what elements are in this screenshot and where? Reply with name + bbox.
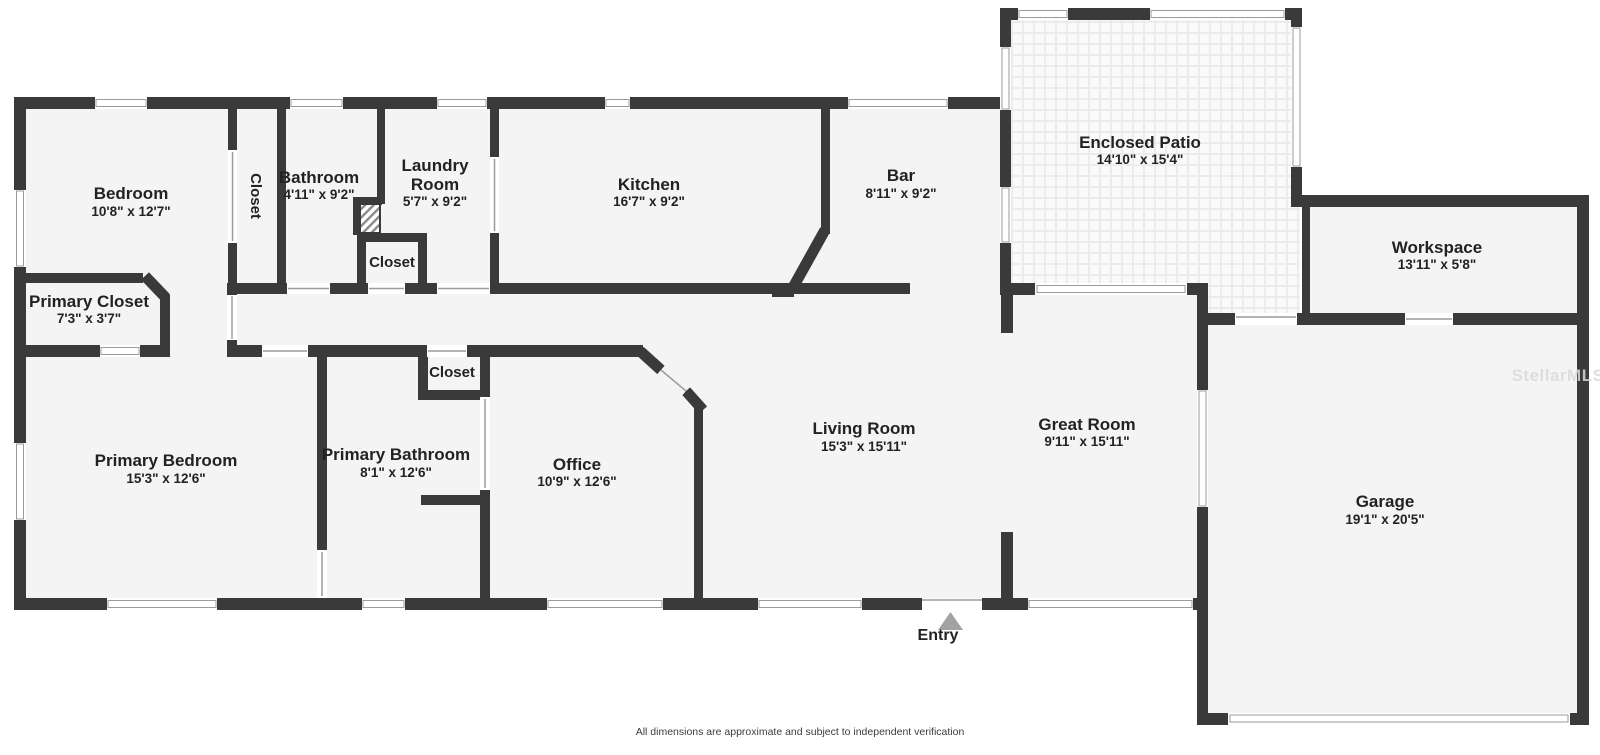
- room-label-great-room: Great Room: [1038, 415, 1135, 434]
- room-label-primary-bedroom: Primary Bedroom: [95, 451, 238, 470]
- room-label-living-room: Living Room: [813, 419, 916, 438]
- room-label-laundry-line2: Room: [411, 175, 459, 194]
- room-label-workspace: Workspace: [1392, 238, 1482, 257]
- floorplan-svg: Bedroom 10'8" x 12'7" Closet Bathroom 4'…: [0, 0, 1600, 755]
- room-label-bar: Bar: [887, 166, 916, 185]
- floorplan-image: Bedroom 10'8" x 12'7" Closet Bathroom 4'…: [0, 0, 1600, 755]
- room-dims-great-room: 9'11" x 15'11": [1044, 434, 1129, 449]
- room-dims-workspace: 13'11" x 5'8": [1398, 257, 1477, 272]
- room-label-bedroom: Bedroom: [94, 184, 169, 203]
- room-label-closet-hall: Closet: [369, 254, 415, 271]
- room-label-garage: Garage: [1356, 492, 1415, 511]
- room-dims-primary-closet: 7'3" x 3'7": [57, 311, 121, 326]
- room-label-laundry-line1: Laundry: [401, 156, 469, 175]
- room-dims-garage: 19'1" x 20'5": [1345, 512, 1424, 527]
- room-dims-kitchen: 16'7" x 9'2": [613, 194, 685, 209]
- room-label-primary-bathroom: Primary Bathroom: [322, 445, 470, 464]
- room-label-bathroom: Bathroom: [279, 168, 359, 187]
- chimney-hatch: [360, 204, 380, 233]
- room-label-patio: Enclosed Patio: [1079, 133, 1201, 152]
- room-dims-bathroom: 4'11" x 9'2": [283, 187, 354, 202]
- room-dims-primary-bedroom: 15'3" x 12'6": [126, 471, 205, 486]
- room-dims-patio: 14'10" x 15'4": [1097, 152, 1184, 167]
- room-label-primary-closet: Primary Closet: [29, 292, 149, 311]
- watermark: StellarMLS: [1512, 366, 1600, 385]
- room-label-kitchen: Kitchen: [618, 175, 680, 194]
- room-label-closet-bedroom: Closet: [247, 173, 264, 219]
- room-dims-laundry: 5'7" x 9'2": [403, 194, 467, 209]
- room-dims-primary-bathroom: 8'1" x 12'6": [360, 465, 432, 480]
- entry-label: Entry: [918, 627, 959, 644]
- footer-disclaimer: All dimensions are approximate and subje…: [636, 726, 965, 738]
- room-label-closet-primary-bath: Closet: [429, 364, 475, 381]
- room-dims-living-room: 15'3" x 15'11": [821, 439, 907, 454]
- room-dims-bar: 8'11" x 9'2": [865, 186, 936, 201]
- room-dims-office: 10'9" x 12'6": [537, 474, 616, 489]
- room-label-office: Office: [553, 455, 601, 474]
- room-dims-bedroom: 10'8" x 12'7": [91, 204, 170, 219]
